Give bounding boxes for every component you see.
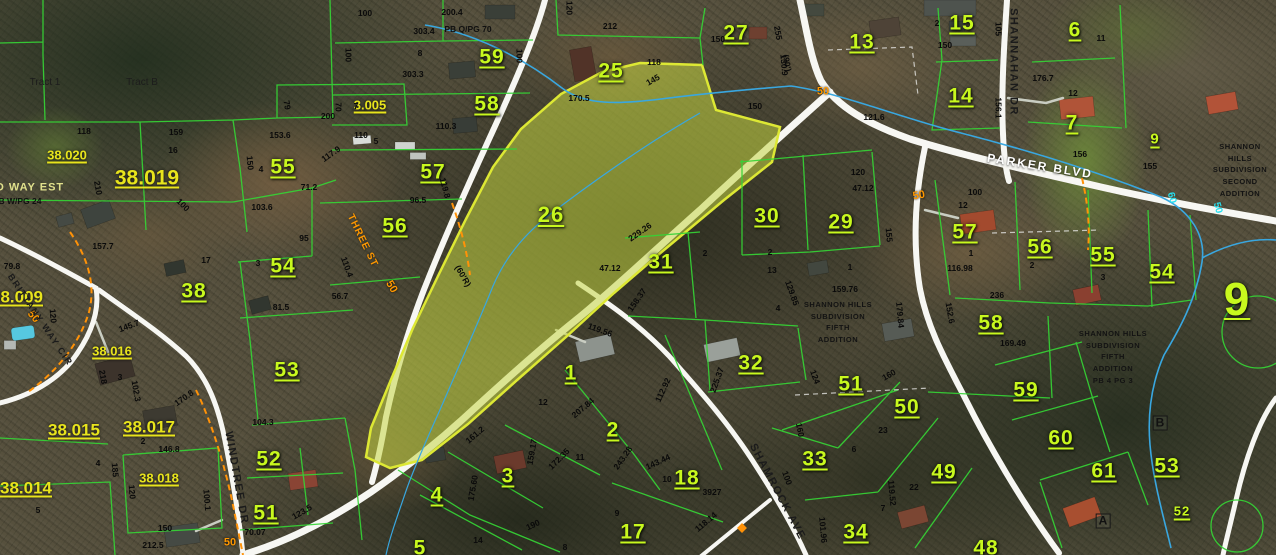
dimension-label: 210 bbox=[93, 180, 104, 195]
parcel-number-label[interactable]: 9 bbox=[1224, 276, 1251, 322]
dimension-label: 243.28 bbox=[612, 445, 634, 471]
dimension-label: 4 bbox=[776, 304, 781, 313]
dimension-label: 17 bbox=[201, 256, 210, 265]
dimension-label: 150 bbox=[158, 524, 172, 533]
dimension-label: 155 bbox=[1143, 162, 1157, 171]
parcel-number-label[interactable]: 53 bbox=[1154, 456, 1179, 477]
dimension-label: 118 bbox=[77, 127, 91, 136]
parcel-number-label[interactable]: 34 bbox=[843, 522, 868, 543]
dimension-label: 161.2 bbox=[464, 425, 486, 445]
parcel-number-label[interactable]: 29 bbox=[828, 212, 853, 233]
map-sheet-label: 38.016 bbox=[92, 345, 132, 358]
parcel-number-label[interactable]: 31 bbox=[648, 252, 673, 273]
parcel-number-label[interactable]: 4 bbox=[431, 485, 444, 506]
parcel-number-label[interactable]: 50 bbox=[894, 397, 919, 418]
dimension-label: 190 bbox=[525, 518, 541, 532]
dimension-label: 153.6 bbox=[269, 131, 290, 140]
dimension-label: 105 bbox=[994, 22, 1003, 36]
dimension-label: 212 bbox=[603, 22, 617, 31]
dimension-label: 218 bbox=[98, 369, 109, 384]
dimension-label: 170.8 bbox=[173, 388, 195, 407]
dimension-label: 185 bbox=[110, 463, 120, 478]
plat-reference-label: D WAY EST bbox=[0, 183, 64, 194]
dimension-label: 79.8 bbox=[4, 262, 21, 271]
dimension-label: 303.3 bbox=[402, 70, 423, 79]
dimension-label: 145.7 bbox=[118, 318, 141, 333]
dimension-label: 145 bbox=[645, 73, 662, 87]
parcel-number-label[interactable]: 9 bbox=[1150, 132, 1159, 147]
parcel-number-label[interactable]: 38 bbox=[181, 281, 206, 302]
parcel-number-label[interactable]: 55 bbox=[1090, 245, 1115, 266]
dimension-label: 155 bbox=[884, 228, 894, 243]
dimension-label: 159.17 bbox=[526, 438, 539, 465]
map-sheet-label: 38.017 bbox=[123, 419, 175, 436]
dimension-label: 10 bbox=[662, 475, 671, 484]
dimension-label: 123.5 bbox=[291, 503, 314, 521]
dimension-label: 2 bbox=[141, 437, 146, 446]
dimension-label: 118.14 bbox=[693, 511, 718, 534]
dimension-label: 100.1 bbox=[202, 489, 212, 511]
dimension-label: 16 bbox=[168, 146, 177, 155]
dimension-label: 7 bbox=[354, 102, 359, 111]
dimension-label: 11 bbox=[1097, 34, 1106, 43]
map-sheet-label: 38.019 bbox=[115, 168, 179, 189]
dimension-label: 143.44 bbox=[644, 453, 671, 472]
dimension-label: 79 bbox=[282, 100, 292, 111]
parcel-number-label[interactable]: 52 bbox=[256, 449, 281, 470]
map-sheet-label: 38.018 bbox=[139, 472, 179, 485]
dimension-label: 5 bbox=[374, 137, 379, 146]
dimension-label: 3927 bbox=[703, 488, 722, 497]
dimension-label: 236 bbox=[990, 291, 1004, 300]
parcel-number-label[interactable]: 55 bbox=[270, 157, 295, 178]
dimension-label: 120 bbox=[48, 309, 58, 324]
dimension-label: 172.35 bbox=[547, 447, 571, 471]
dimension-label: 175.60 bbox=[467, 474, 480, 501]
dimension-label: 110 bbox=[354, 131, 368, 140]
dimension-label: 119.8 bbox=[438, 177, 452, 199]
parcel-number-label[interactable]: 53 bbox=[274, 360, 299, 381]
dimension-label: 176.7 bbox=[1032, 74, 1053, 83]
dimension-label: 3 bbox=[1101, 273, 1106, 282]
dimension-label: 102.3 bbox=[130, 380, 142, 402]
dimension-label: 12 bbox=[958, 201, 967, 210]
dimension-label: 101.96 bbox=[818, 517, 829, 544]
dimension-label: 170.5 bbox=[568, 94, 589, 103]
dimension-label: 116.98 bbox=[947, 264, 973, 273]
dimension-label: 7 bbox=[881, 504, 886, 513]
parcel-number-label[interactable]: 5 bbox=[414, 538, 427, 555]
dimension-label: 146.8 bbox=[158, 445, 179, 454]
parcel-number-label[interactable]: 7 bbox=[1066, 113, 1079, 134]
dimension-label: 70.07 bbox=[244, 528, 265, 537]
road-width-label: 50 bbox=[912, 190, 926, 203]
dimension-label: 1 bbox=[969, 249, 974, 258]
dimension-label: 212.5 bbox=[142, 541, 163, 550]
dimension-label: 5 bbox=[36, 506, 41, 515]
parcel-number-label[interactable]: 59 bbox=[479, 47, 504, 68]
dimension-label: 225.37 bbox=[709, 366, 726, 393]
road-width-label: 50 bbox=[383, 279, 399, 295]
dimension-label: 207.84 bbox=[570, 396, 595, 419]
dimension-label: 160 bbox=[795, 422, 806, 437]
subdivision-note: SHANNON HILLSSUBDIVISIONSECONDADDITION bbox=[1213, 141, 1267, 199]
dimension-label: 14 bbox=[473, 536, 482, 545]
dimension-label: 12 bbox=[538, 398, 547, 407]
parcel-number-label[interactable]: 1 bbox=[565, 363, 578, 384]
dimension-label: 56.7 bbox=[332, 292, 349, 301]
parcel-number-label[interactable]: 57 bbox=[952, 222, 977, 243]
parcel-number-label[interactable]: 60 bbox=[1048, 428, 1073, 449]
street-name-label: SHAMROCK AVE bbox=[747, 442, 807, 542]
dimension-label: 150 bbox=[245, 156, 255, 171]
dimension-label: 2 bbox=[935, 19, 940, 28]
parcel-number-label[interactable]: 13 bbox=[849, 32, 874, 53]
dimension-label: 23 bbox=[878, 426, 887, 435]
parcel-number-label[interactable]: 56 bbox=[1027, 237, 1052, 258]
map-sheet-label: 38.014 bbox=[0, 480, 52, 497]
road-width-label: 50 bbox=[224, 538, 236, 549]
dimension-label: 120 bbox=[851, 168, 865, 177]
dimension-label: 96.5 bbox=[410, 196, 427, 205]
parcel-number-label[interactable]: 6 bbox=[1069, 20, 1082, 41]
dimension-label: (60'R) bbox=[453, 264, 472, 288]
parcel-number-label[interactable]: 52 bbox=[1174, 505, 1190, 518]
dimension-label: 100 bbox=[358, 9, 372, 18]
dimension-label: 47.12 bbox=[852, 184, 873, 193]
dimension-label: 100 bbox=[781, 470, 794, 486]
parcel-number-label[interactable]: 61 bbox=[1091, 461, 1116, 482]
dimension-label: 6 bbox=[852, 445, 857, 454]
dimension-label: 120 bbox=[565, 1, 574, 15]
dimension-label: 95 bbox=[299, 234, 308, 243]
dimension-label: 156.1 bbox=[994, 97, 1003, 118]
dimension-label: 130.9 bbox=[779, 54, 789, 76]
dimension-label: 13 bbox=[767, 266, 776, 275]
dimension-label: 8 bbox=[418, 49, 423, 58]
dimension-label: 71.2 bbox=[301, 183, 318, 192]
parcel-number-label[interactable]: 14 bbox=[948, 86, 973, 107]
subdivision-note: SHANNON HILLSSUBDIVISIONFIFTHADDITIONPB … bbox=[1079, 328, 1147, 386]
dimension-label: 200.4 bbox=[441, 8, 462, 17]
parcel-number-label[interactable]: 27 bbox=[723, 23, 748, 44]
dimension-label: 2 bbox=[703, 249, 708, 258]
dimension-label: 150 bbox=[938, 41, 952, 50]
parcel-number-label[interactable]: 48 bbox=[973, 538, 998, 555]
dimension-label: 117.9 bbox=[320, 145, 342, 164]
parcel-number-label[interactable]: 15 bbox=[949, 13, 974, 34]
dimension-label: 150 bbox=[748, 102, 762, 111]
dimension-label: 103.6 bbox=[251, 203, 272, 212]
dimension-label: 120 bbox=[127, 485, 137, 500]
parcel-number-label[interactable]: 18 bbox=[674, 468, 699, 489]
gis-map-canvas[interactable]: 5958555756543853525125262713151467930293… bbox=[0, 0, 1276, 555]
dimension-label: 100 bbox=[344, 48, 353, 62]
map-sheet-label: 38.020 bbox=[47, 149, 87, 162]
dimension-label: 255 bbox=[773, 25, 784, 40]
parcel-number-label[interactable]: 56 bbox=[382, 216, 407, 237]
survey-point-marker: B bbox=[1153, 416, 1168, 431]
parcel-number-label[interactable]: 59 bbox=[1013, 380, 1038, 401]
dimension-label: 22 bbox=[909, 483, 918, 492]
parcel-number-label[interactable]: 51 bbox=[253, 503, 278, 524]
dimension-label: 158.37 bbox=[626, 287, 648, 313]
dimension-label: 159.76 bbox=[832, 285, 858, 294]
dimension-label: 119.56 bbox=[587, 322, 614, 339]
tract-label: Tract B bbox=[126, 78, 158, 88]
dimension-label: 152.6 bbox=[944, 302, 956, 324]
dimension-label: 119.52 bbox=[887, 480, 898, 506]
road-width-label: 50 bbox=[1211, 201, 1224, 214]
dimension-label: 159 bbox=[169, 128, 183, 137]
dimension-label: 110.4 bbox=[339, 256, 354, 278]
dimension-label: 1 bbox=[848, 263, 853, 272]
dimension-label: 2 bbox=[1030, 261, 1035, 270]
dimension-label: 112.92 bbox=[654, 377, 672, 404]
tract-label: Tract 1 bbox=[30, 78, 61, 88]
dimension-label: 4 bbox=[96, 459, 101, 468]
map-sheet-label: 38.015 bbox=[48, 422, 100, 439]
dimension-label: 3 bbox=[118, 373, 123, 382]
dimension-label: 81.5 bbox=[273, 303, 290, 312]
dimension-label: 3 bbox=[256, 259, 261, 268]
dimension-label: 156 bbox=[1073, 150, 1087, 159]
dimension-label: 8 bbox=[563, 543, 568, 552]
subdivision-note: SHANNON HILLSSUBDIVISIONFIFTHADDITION bbox=[804, 299, 872, 346]
street-name-label: SHANNAHAN DR bbox=[1008, 8, 1019, 116]
survey-point-marker: A bbox=[1096, 514, 1111, 529]
dimension-label: 157.7 bbox=[92, 242, 113, 251]
parcel-number-label[interactable]: 2 bbox=[607, 420, 620, 441]
dimension-label: 9 bbox=[615, 509, 620, 518]
parcel-number-label[interactable]: 49 bbox=[931, 462, 956, 483]
parcel-number-label[interactable]: 26 bbox=[538, 204, 564, 226]
dimension-label: 104.3 bbox=[252, 418, 273, 427]
parcel-number-label[interactable]: 3 bbox=[502, 466, 515, 487]
dimension-label: 121.6 bbox=[863, 113, 884, 122]
dimension-label: 124 bbox=[809, 369, 822, 385]
dimension-label: 150 bbox=[711, 35, 725, 44]
parcel-number-label[interactable]: 32 bbox=[738, 353, 763, 374]
plat-reference-label: B W/PG 24 bbox=[0, 197, 41, 206]
parcel-number-label[interactable]: 58 bbox=[978, 313, 1003, 334]
dimension-label: 229.26 bbox=[627, 221, 653, 243]
dimension-label: 303.4 bbox=[413, 27, 434, 36]
dimension-label: 12 bbox=[1068, 89, 1077, 98]
dimension-label: 4 bbox=[259, 165, 264, 174]
parcel-number-label[interactable]: 58 bbox=[474, 94, 499, 115]
dimension-label: 179.84 bbox=[895, 302, 906, 329]
dimension-label: 200 bbox=[321, 112, 335, 121]
dimension-label: 100 bbox=[515, 49, 524, 63]
dimension-label: 70 bbox=[334, 102, 343, 111]
dimension-label: 100 bbox=[968, 188, 982, 197]
dimension-label: 160 bbox=[881, 368, 898, 382]
dimension-label: 2 bbox=[768, 248, 773, 257]
parcel-number-label[interactable]: 33 bbox=[802, 449, 827, 470]
plat-reference-label: PB Q/PG 70 bbox=[444, 25, 491, 34]
dimension-label: 118 bbox=[647, 58, 661, 67]
street-name-label: WINDTREE DR bbox=[222, 431, 249, 526]
road-width-label: 50 bbox=[817, 87, 829, 98]
parcel-number-label[interactable]: 17 bbox=[620, 522, 645, 543]
parcel-number-label[interactable]: 25 bbox=[598, 61, 623, 82]
dimension-label: 169.49 bbox=[1000, 339, 1026, 348]
parcel-number-label[interactable]: 54 bbox=[1149, 262, 1174, 283]
map-labels-layer: 5958555756543853525125262713151467930293… bbox=[0, 0, 1276, 555]
parcel-number-label[interactable]: 30 bbox=[754, 206, 779, 227]
dimension-label: 129.85 bbox=[784, 279, 801, 306]
dimension-label: 110.3 bbox=[436, 122, 457, 131]
parcel-number-label[interactable]: 51 bbox=[838, 374, 863, 395]
dimension-label: 100 bbox=[175, 197, 191, 213]
road-width-label: 60 bbox=[1165, 191, 1178, 204]
parcel-number-label[interactable]: 54 bbox=[270, 256, 295, 277]
dimension-label: 47.12 bbox=[599, 264, 620, 273]
dimension-label: 11 bbox=[576, 453, 585, 462]
